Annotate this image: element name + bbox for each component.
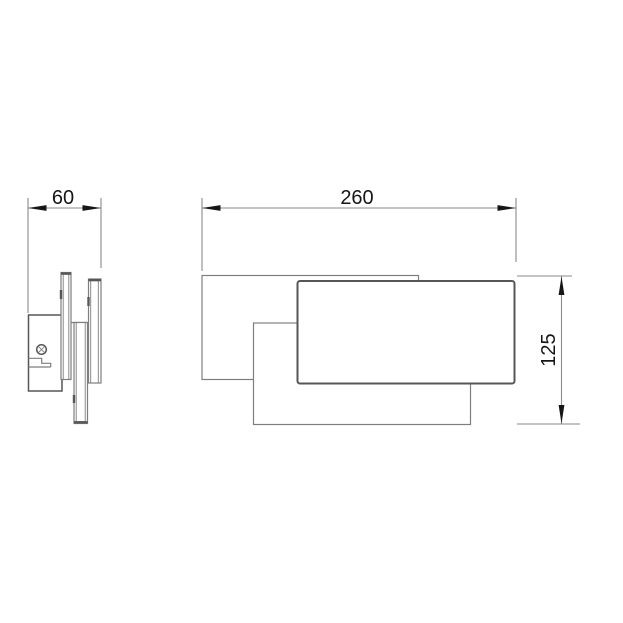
depth-dimension-label: 60 — [52, 187, 74, 209]
front-view: 260 125 — [202, 187, 580, 425]
arrowhead-left-icon — [202, 205, 221, 211]
front-right-panel — [298, 281, 515, 384]
back-plate-profile — [61, 273, 71, 380]
front-plate-profile — [89, 279, 102, 383]
height-dimension-label: 125 — [538, 333, 560, 366]
drawing-canvas: 60 — [0, 0, 623, 623]
dimension-width: 260 — [202, 187, 516, 271]
dimension-height: 125 — [517, 276, 580, 424]
technical-drawing: 60 — [0, 0, 623, 623]
wall-bracket — [29, 315, 63, 391]
width-dimension-label: 260 — [340, 187, 373, 209]
arrowhead-down-icon — [559, 405, 565, 424]
lower-plate-profile — [71, 323, 88, 424]
arrowhead-left-icon — [28, 205, 47, 211]
side-view: 60 — [28, 187, 101, 424]
arrowhead-right-icon — [498, 205, 517, 211]
arrowhead-up-icon — [559, 277, 565, 296]
arrowhead-right-icon — [83, 205, 102, 211]
